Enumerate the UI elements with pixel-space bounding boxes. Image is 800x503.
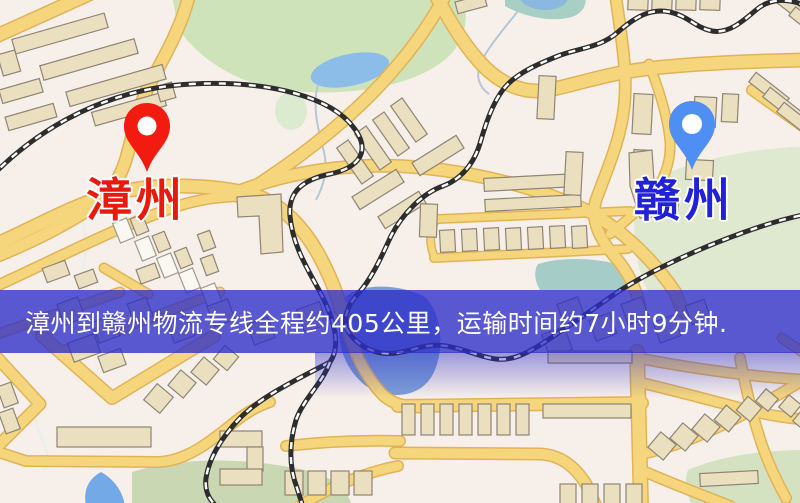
origin-pin-shape bbox=[124, 103, 170, 172]
destination-city-label: 赣州 bbox=[634, 177, 734, 223]
destination-pin-icon[interactable] bbox=[662, 90, 722, 170]
map-canvas: 漳州 赣州 漳州到赣州物流专线全程约405公里，运输时间约7小时9分钟. bbox=[0, 0, 800, 503]
origin-pin-icon[interactable] bbox=[117, 92, 177, 172]
banner-fade-gradient bbox=[315, 352, 800, 398]
map-background bbox=[0, 0, 800, 503]
origin-city-label: 漳州 bbox=[86, 177, 186, 223]
destination-pin-shape bbox=[669, 101, 715, 170]
route-info-banner: 漳州到赣州物流专线全程约405公里，运输时间约7小时9分钟. bbox=[0, 290, 800, 353]
route-info-text: 漳州到赣州物流专线全程约405公里，运输时间约7小时9分钟. bbox=[0, 304, 727, 340]
destination-pin-hole bbox=[682, 114, 702, 134]
origin-pin-hole bbox=[138, 117, 157, 136]
